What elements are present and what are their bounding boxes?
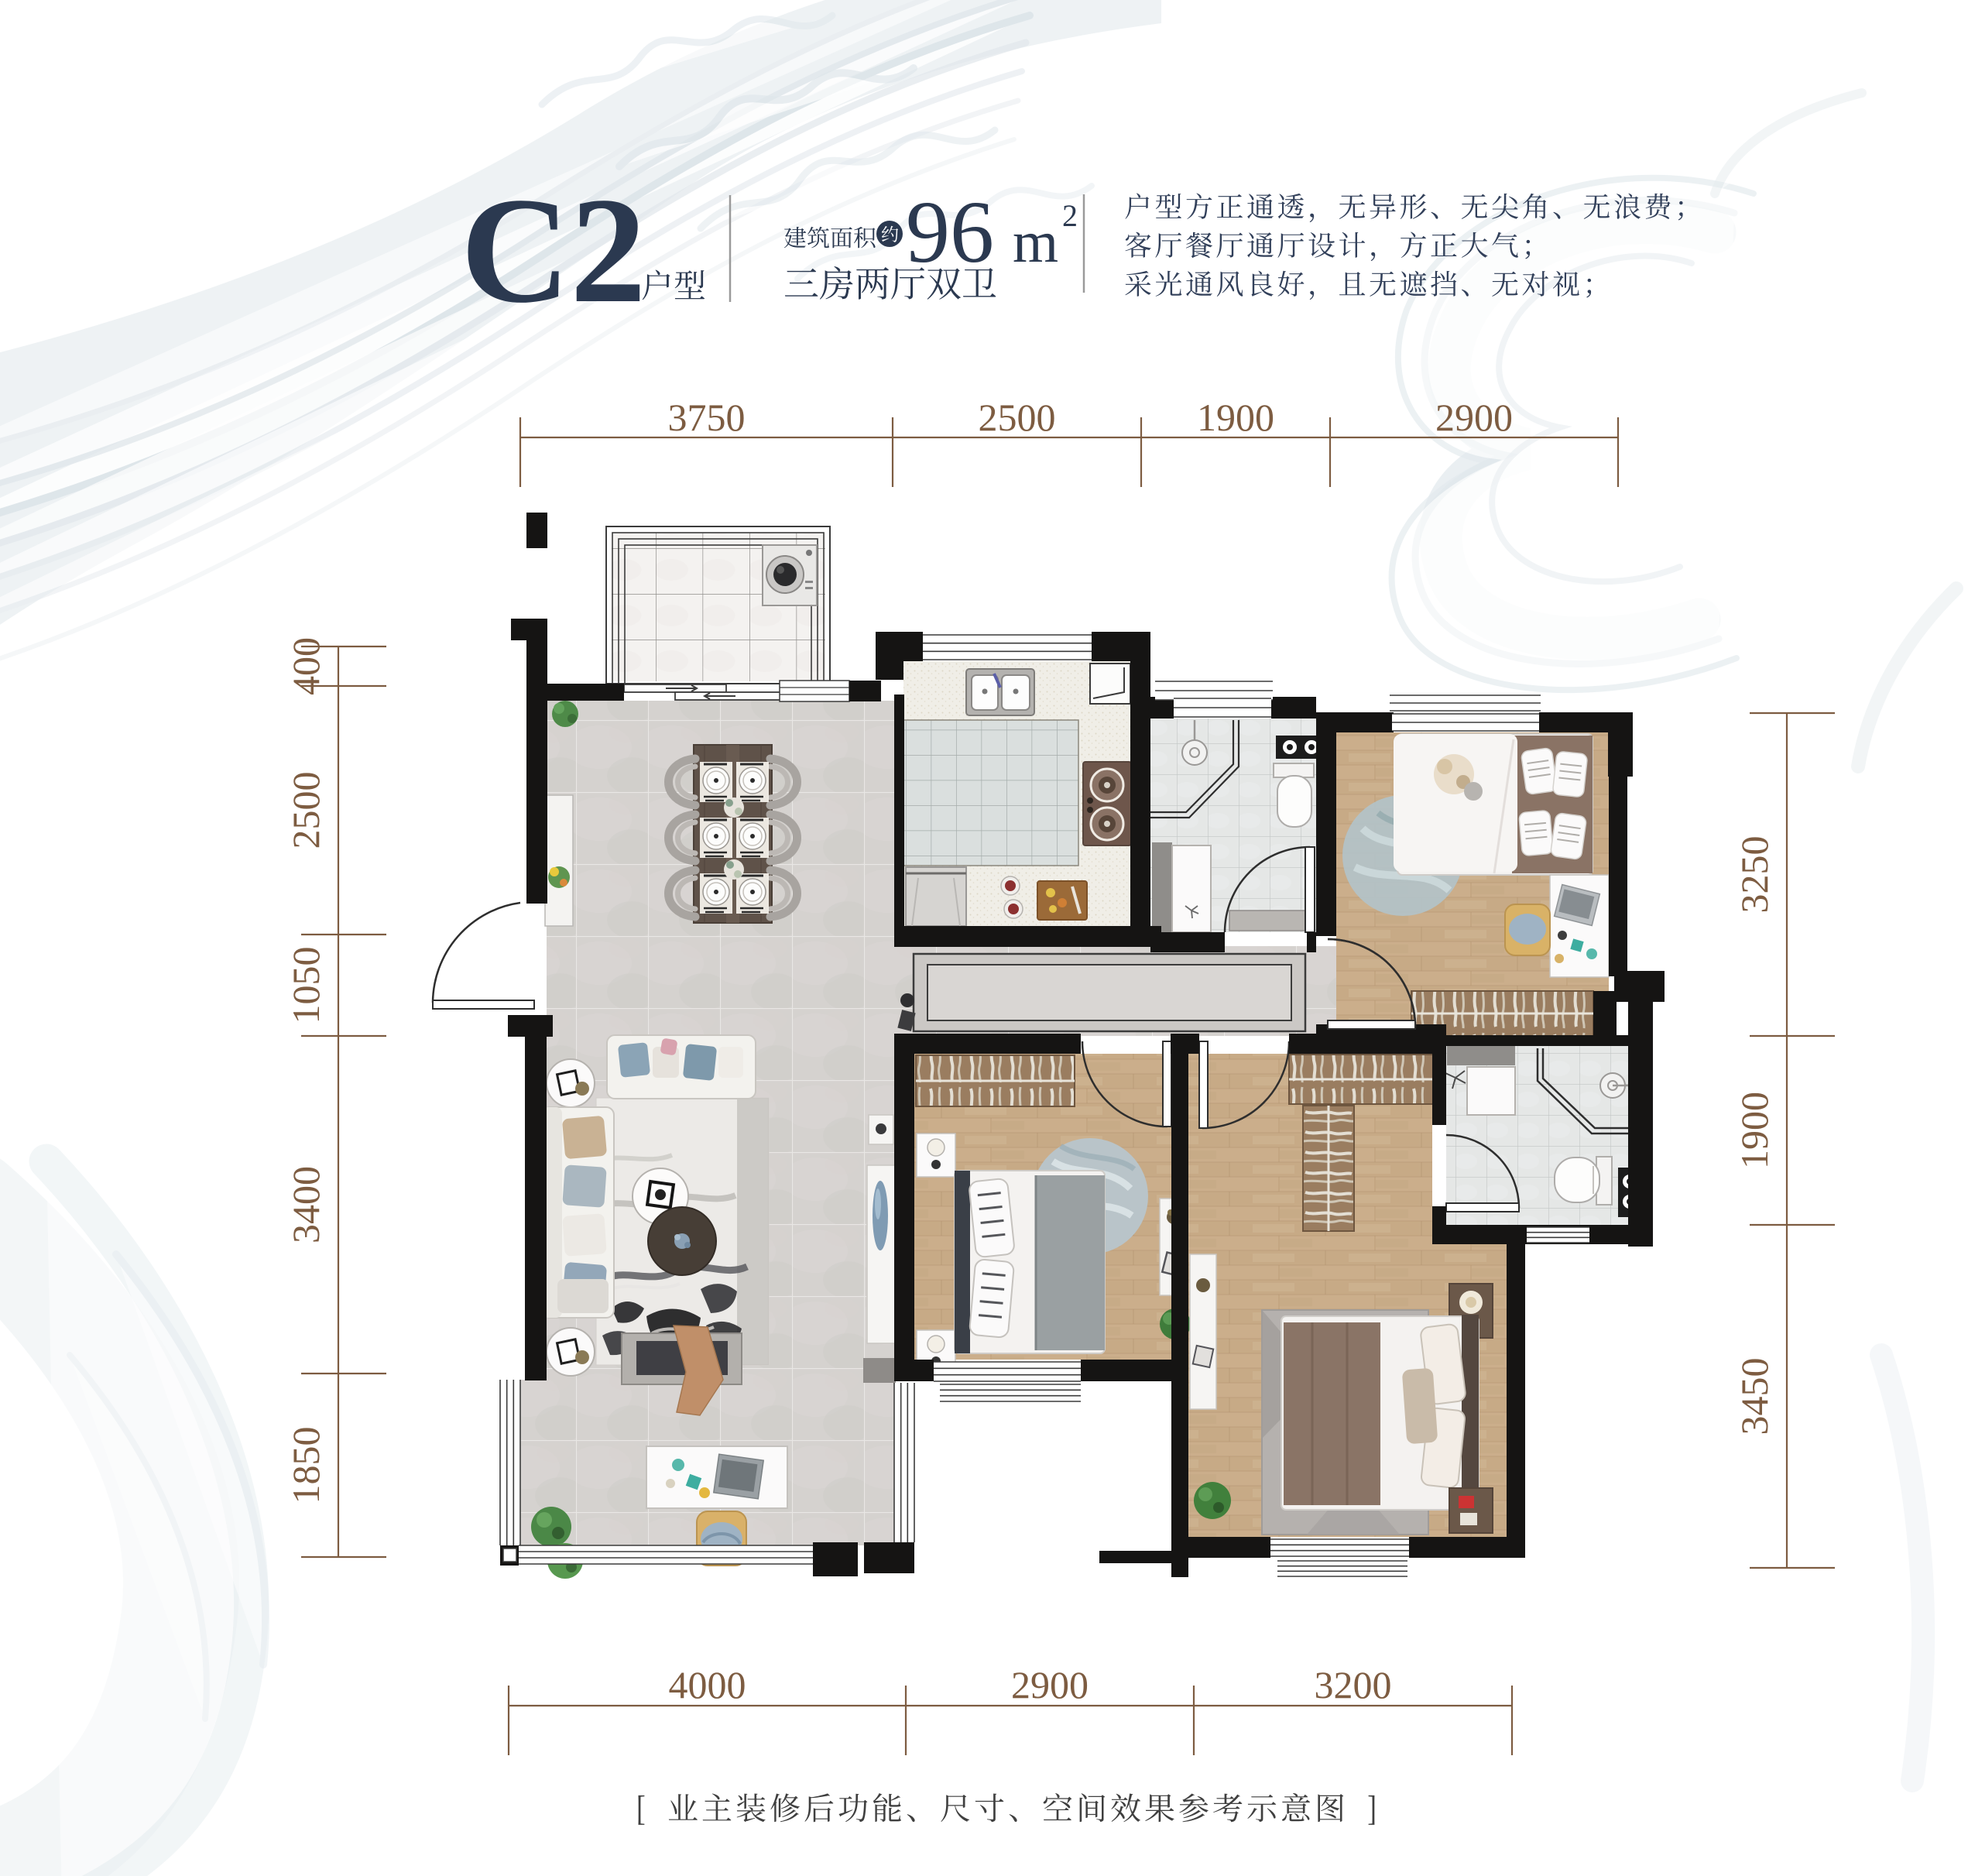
svg-text:1050: 1050 xyxy=(284,947,327,1024)
svg-text:2900: 2900 xyxy=(1435,396,1513,439)
svg-text:400: 400 xyxy=(284,637,327,695)
svg-text:C2: C2 xyxy=(461,166,646,334)
svg-text:2: 2 xyxy=(1062,198,1078,233)
svg-text:m: m xyxy=(1013,210,1058,275)
svg-text:96: 96 xyxy=(906,183,994,281)
svg-text:2500: 2500 xyxy=(979,396,1056,439)
svg-text:3250: 3250 xyxy=(1733,836,1776,914)
svg-text:3450: 3450 xyxy=(1733,1358,1776,1435)
svg-text:4000: 4000 xyxy=(669,1663,746,1706)
svg-text:3400: 3400 xyxy=(284,1166,327,1243)
svg-text:1900: 1900 xyxy=(1197,396,1274,439)
svg-text:3200: 3200 xyxy=(1315,1663,1392,1706)
svg-text:1850: 1850 xyxy=(284,1427,327,1504)
svg-text:3750: 3750 xyxy=(668,396,746,439)
svg-text:2500: 2500 xyxy=(284,772,327,849)
svg-text:1900: 1900 xyxy=(1733,1092,1776,1169)
svg-text:2900: 2900 xyxy=(1011,1663,1089,1706)
